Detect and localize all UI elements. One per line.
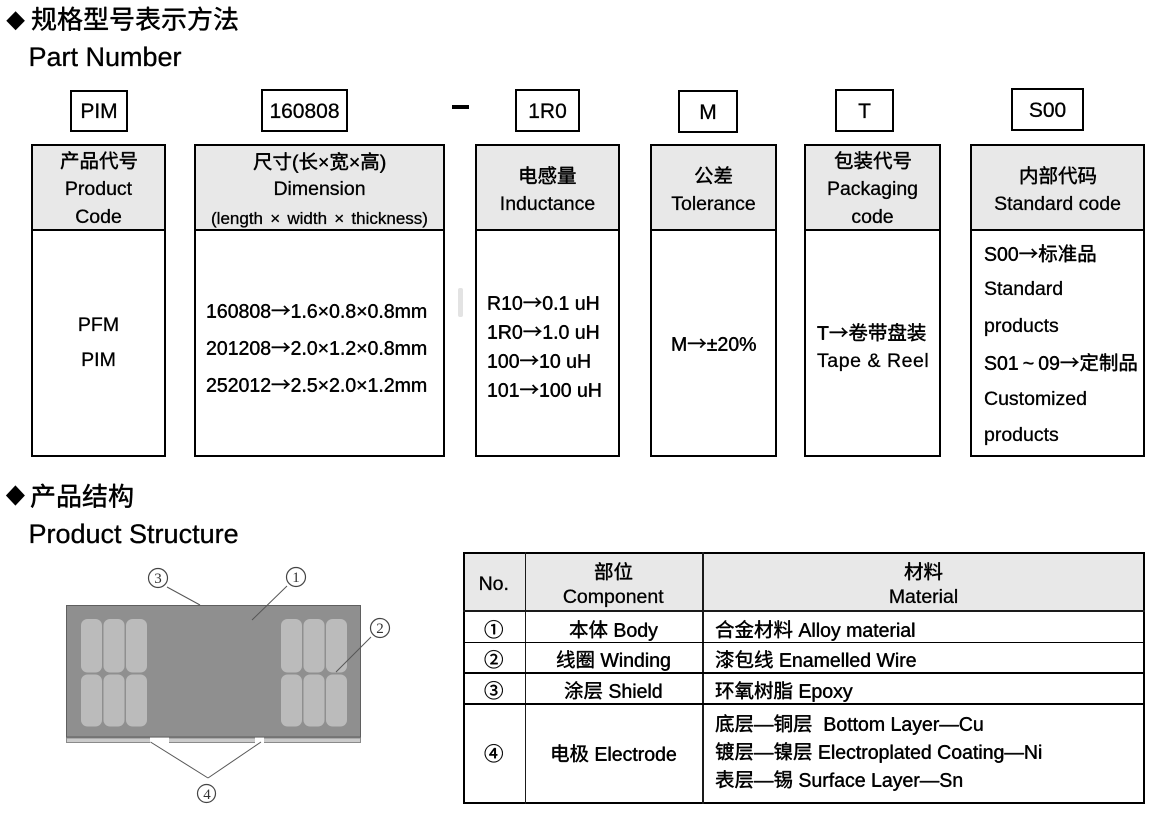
svg-text:3: 3 bbox=[154, 571, 162, 587]
svg-text:1: 1 bbox=[292, 570, 300, 586]
svg-text:2: 2 bbox=[376, 621, 384, 637]
svg-text:4: 4 bbox=[203, 787, 211, 803]
